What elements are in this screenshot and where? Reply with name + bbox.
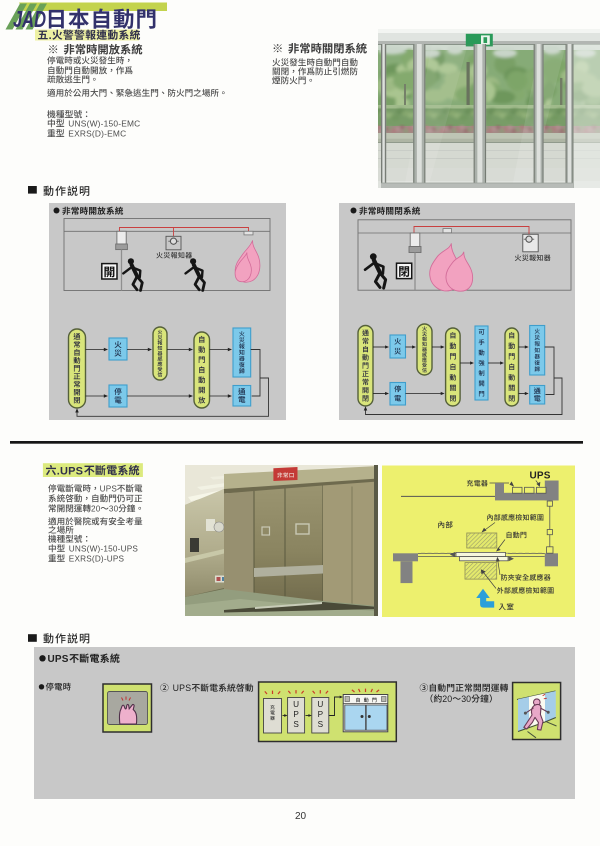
svg-text:JAD: JAD [13,6,46,32]
svg-text:EXRS(D)-UPS: EXRS(D)-UPS [69,555,125,564]
svg-text:EXRS(D)-EMC: EXRS(D)-EMC [68,129,126,139]
svg-text:U: U [293,700,299,709]
svg-text:UPS: UPS [173,683,192,693]
svg-text:30: 30 [109,505,119,514]
svg-text:20: 20 [91,505,101,514]
svg-text:U: U [317,700,323,709]
svg-text:UNS(W)-150-UPS: UNS(W)-150-UPS [69,545,139,554]
svg-text:UNS(W)-150-EMC: UNS(W)-150-EMC [68,119,140,129]
svg-text:S: S [318,720,324,729]
svg-text:S: S [293,720,299,729]
svg-text:UPS: UPS [48,654,69,665]
svg-text:20: 20 [295,811,307,822]
svg-text:UPS: UPS [100,485,118,494]
svg-text:.UPS: .UPS [57,465,83,477]
svg-text:UPS: UPS [530,471,551,482]
svg-text:P: P [318,710,324,719]
svg-text:20: 20 [442,694,452,704]
svg-text:P: P [293,710,299,719]
svg-text:.: . [49,30,52,42]
svg-text:30: 30 [461,694,471,704]
